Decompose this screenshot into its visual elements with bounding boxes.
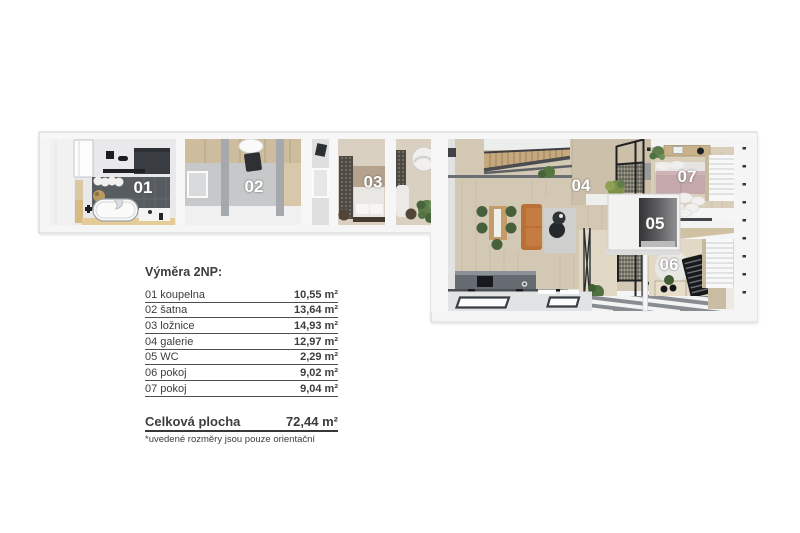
svg-text:06: 06	[660, 255, 679, 274]
svg-text:03: 03	[364, 173, 383, 192]
svg-text:05: 05	[646, 214, 665, 233]
svg-text:02: 02	[245, 177, 264, 196]
svg-text:07: 07	[678, 167, 697, 186]
svg-text:04: 04	[572, 176, 591, 195]
svg-text:01: 01	[134, 178, 153, 197]
